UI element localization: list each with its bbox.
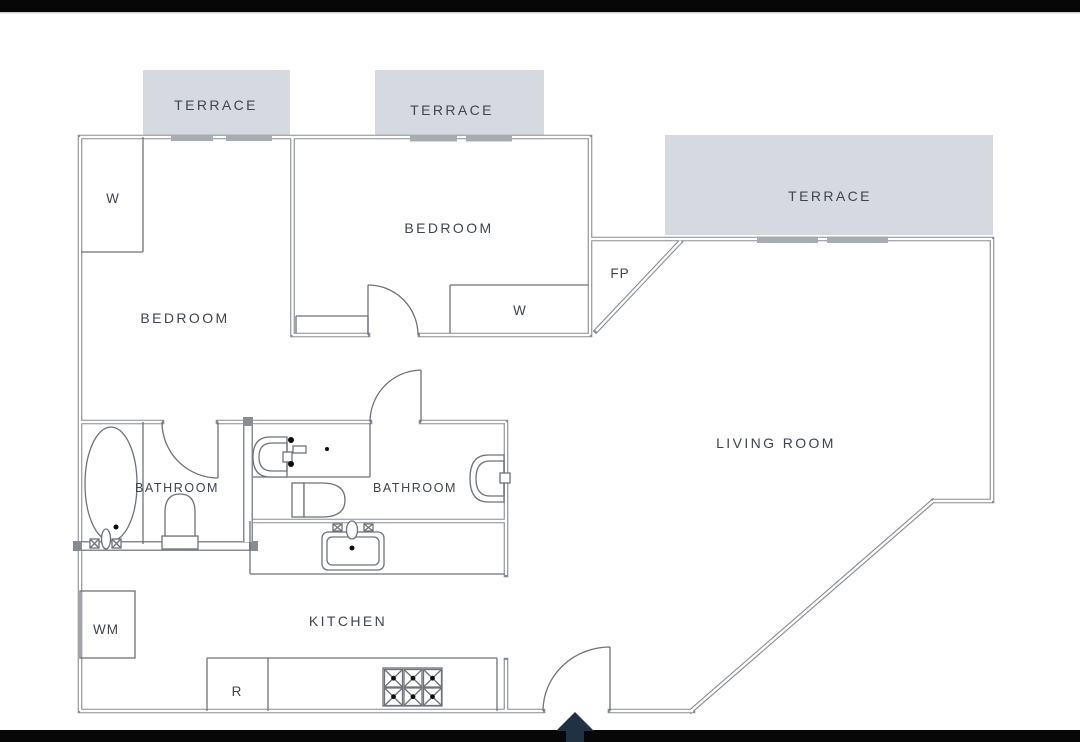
window-icon bbox=[171, 135, 213, 142]
bedroom-mid-label: BEDROOM bbox=[404, 220, 493, 236]
window-icon bbox=[466, 135, 512, 142]
toilet-icon bbox=[292, 483, 345, 517]
terrace-right-area bbox=[665, 135, 993, 235]
fireplace-label: FP bbox=[610, 266, 629, 281]
wardrobe-left-label: W bbox=[106, 191, 120, 206]
window-icon bbox=[757, 237, 818, 244]
terrace-top-mid-label: TERRACE bbox=[410, 102, 494, 118]
living-room-label: LIVING ROOM bbox=[716, 435, 836, 451]
letterbox-bottom bbox=[0, 730, 1080, 742]
window-icon bbox=[827, 237, 888, 244]
shower-valve-icon bbox=[288, 461, 294, 467]
terrace-top-left-label: TERRACE bbox=[174, 97, 258, 113]
kitchen-label: KITCHEN bbox=[309, 613, 387, 629]
floor-plan-page: TERRACE TERRACE TERRACE BEDROOM BEDROOM … bbox=[0, 0, 1080, 742]
sink-icon bbox=[470, 455, 510, 502]
washing-machine-label: WM bbox=[93, 622, 119, 637]
bedroom-left-label: BEDROOM bbox=[140, 310, 229, 326]
terrace-right-label: TERRACE bbox=[788, 188, 872, 204]
bathroom-mid-label: BATHROOM bbox=[373, 481, 457, 495]
bathroom-left-label: BATHROOM bbox=[135, 481, 219, 495]
toilet-icon bbox=[162, 494, 198, 549]
drain-icon bbox=[325, 447, 329, 451]
shower-valve-icon bbox=[288, 437, 294, 443]
wardrobe-mid-label: W bbox=[513, 303, 527, 318]
window-icon bbox=[410, 135, 457, 142]
floor-plan: TERRACE TERRACE TERRACE BEDROOM BEDROOM … bbox=[0, 0, 1080, 742]
letterbox-top bbox=[0, 0, 1080, 12]
refrigerator-label: R bbox=[232, 684, 243, 699]
window-icon bbox=[226, 135, 272, 142]
sink-icon bbox=[253, 437, 292, 477]
letterbox-top-edge bbox=[0, 12, 1080, 14]
